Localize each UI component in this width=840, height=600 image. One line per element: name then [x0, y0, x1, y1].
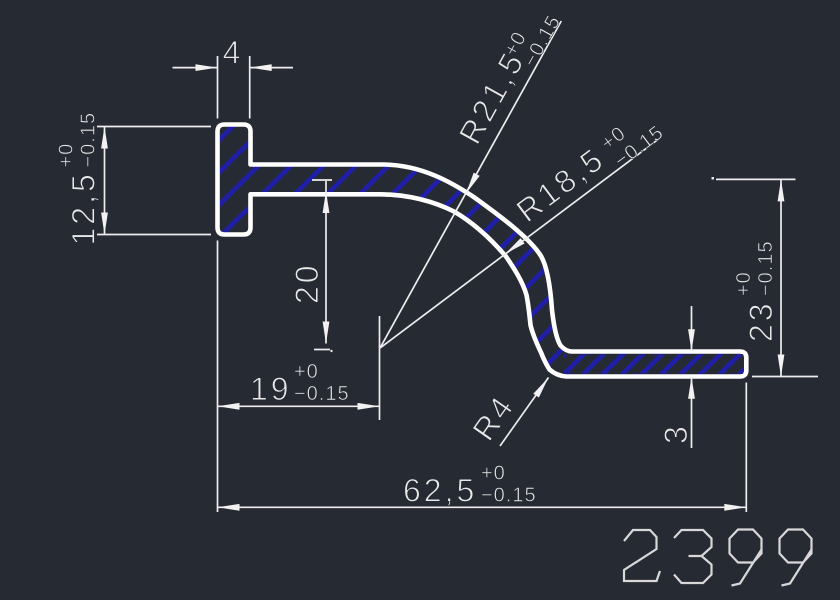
svg-text:4: 4 [223, 34, 244, 70]
svg-text:−0.15: −0.15 [481, 485, 537, 507]
svg-text:3: 3 [658, 423, 694, 444]
svg-text:+0: +0 [294, 361, 319, 383]
svg-text:19: 19 [250, 371, 292, 407]
svg-text:−0.15: −0.15 [78, 112, 100, 168]
svg-text:+0: +0 [56, 143, 78, 168]
svg-text:−0.15: −0.15 [294, 383, 350, 405]
svg-text:12,5: 12,5 [66, 171, 102, 245]
svg-text:+0: +0 [481, 463, 506, 485]
svg-text:62,5: 62,5 [403, 473, 477, 509]
svg-text:+0: +0 [733, 271, 755, 296]
svg-text:20: 20 [289, 262, 325, 304]
svg-text:23: 23 [743, 300, 779, 342]
svg-text:−0.15: −0.15 [755, 240, 777, 296]
